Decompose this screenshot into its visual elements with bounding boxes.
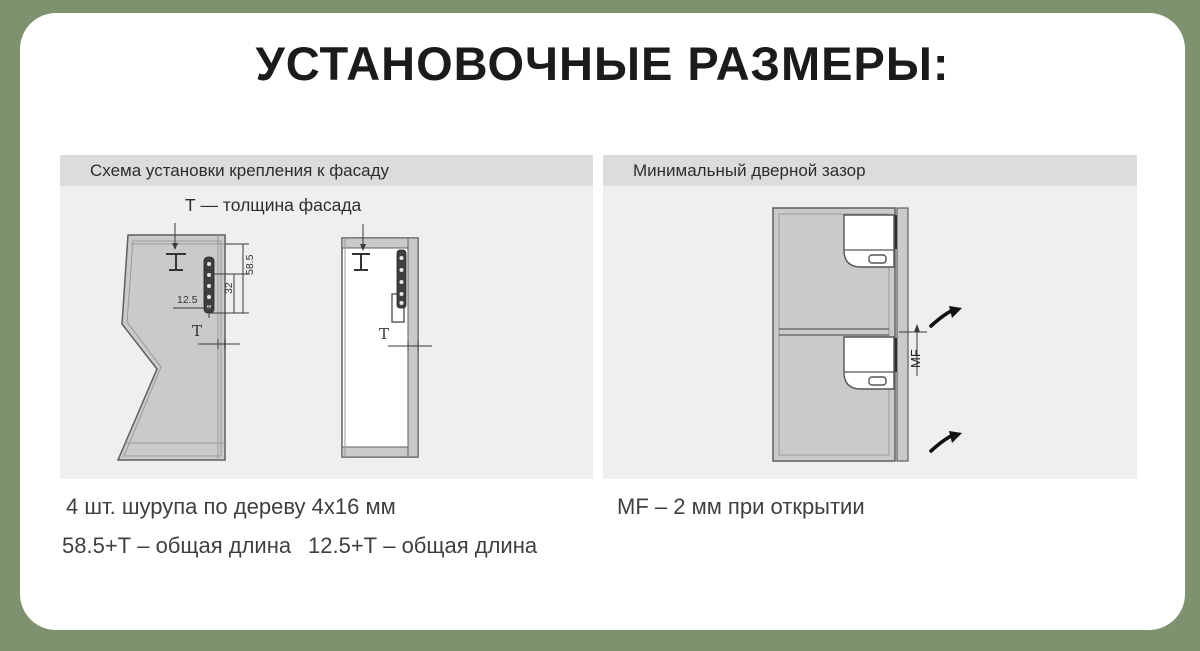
dim-label-32: 32 [223, 282, 235, 294]
facade-mount-panel-title: Схема установки крепления к фасаду [90, 161, 389, 181]
frame-right-strip [408, 238, 418, 457]
angled-panel-drawing: 58.5 32 12.5 Т [118, 223, 256, 460]
thickness-letter-lower-left: Т [192, 322, 202, 340]
upper-opening-arrow [931, 306, 962, 326]
lower-opening-arrow [931, 431, 962, 451]
fastener-screw-dot [207, 295, 211, 299]
gap-arrowhead [914, 324, 920, 332]
fastener-screw-dot [400, 292, 404, 296]
page-title: УСТАНОВОЧНЫЕ РАЗМЕРЫ: [20, 36, 1185, 91]
frame-outline [342, 238, 418, 457]
caption-screws: 4 шт. шурупа по дереву 4x16 мм [66, 494, 396, 520]
door-gap-drawing: MF [603, 186, 1137, 479]
thickness-legend-label: Т — толщина фасада [185, 195, 362, 215]
dim-label-585: 58.5 [244, 254, 256, 275]
gap-label: MF [908, 349, 923, 368]
frame-bottom-strip [342, 447, 418, 457]
fastener-screw-dot [400, 256, 404, 260]
frame-top-strip [342, 238, 418, 248]
upper-lift-mechanism [844, 215, 894, 267]
caption-mf-gap: MF – 2 мм при открытии [617, 494, 865, 520]
facade-mount-drawing: Т — толщина фасада [60, 186, 593, 479]
fastener-screw-dot [400, 280, 404, 284]
facade-side-strip [897, 208, 908, 461]
dim-label-125: 12.5 [177, 294, 198, 306]
caption-total-length-585: 58.5+Т – общая длина [62, 533, 291, 559]
straight-panel-drawing: Т [342, 224, 432, 457]
fastener-screw-dot [207, 284, 211, 288]
door-gap-drawing-area: MF [603, 186, 1137, 479]
door-gap-panel: Минимальный дверной зазор [603, 155, 1137, 479]
fastener-screw-dot [207, 262, 211, 266]
caption-total-length-125: 12.5+Т – общая длина [308, 533, 537, 559]
door-gap-panel-header: Минимальный дверной зазор [603, 155, 1137, 186]
fastener-screw-dot [400, 268, 404, 272]
facade-mount-panel-header: Схема установки крепления к фасаду [60, 155, 593, 186]
lower-lift-mechanism [844, 337, 894, 389]
thickness-letter-frame: Т [379, 325, 389, 343]
facade-mount-drawing-area: Т — толщина фасада [60, 186, 593, 479]
facade-mount-panel: Схема установки крепления к фасаду Т — т… [60, 155, 593, 479]
cabinet-front-drawing: MF [773, 208, 962, 461]
door-gap-panel-title: Минимальный дверной зазор [633, 161, 866, 181]
fastener-screw-dot [207, 273, 211, 277]
fastener-screw-dot [400, 301, 404, 305]
